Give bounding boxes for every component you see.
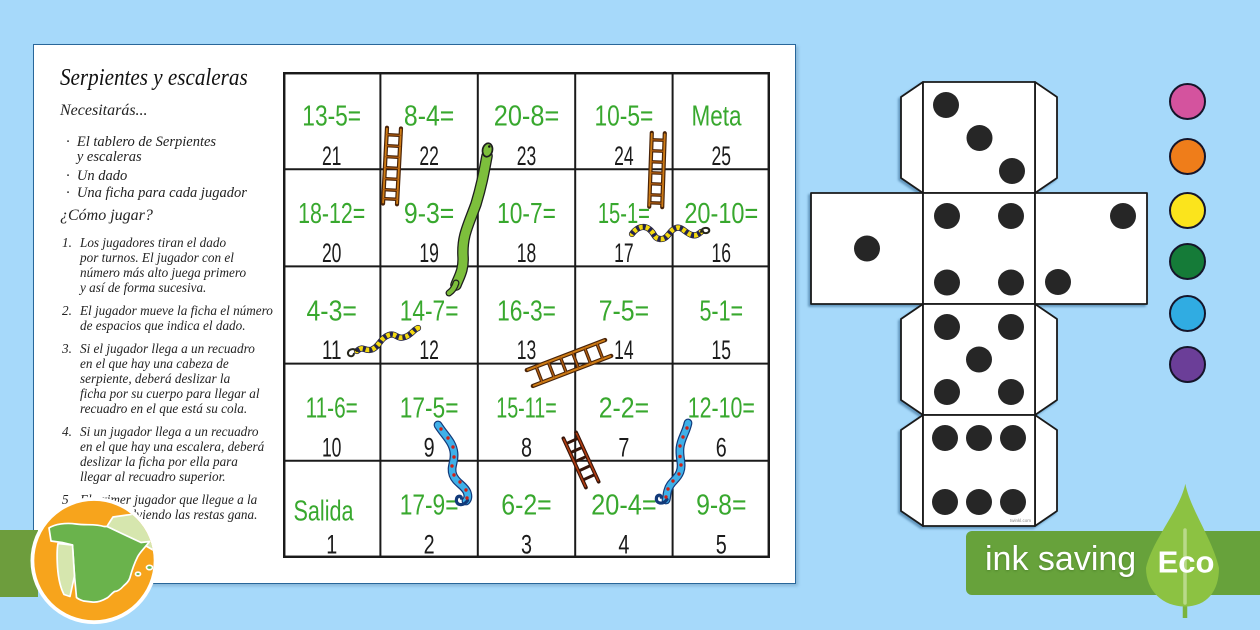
svg-text:8-4=: 8-4= — [404, 101, 454, 133]
svg-text:24: 24 — [614, 141, 634, 171]
svg-text:7: 7 — [618, 433, 629, 463]
svg-text:6-2=: 6-2= — [501, 490, 551, 522]
svg-text:9: 9 — [424, 433, 435, 463]
svg-text:2-2=: 2-2= — [599, 393, 649, 425]
svg-text:20: 20 — [322, 238, 342, 268]
svg-text:15-11=: 15-11= — [496, 393, 557, 425]
svg-text:20-10=: 20-10= — [684, 198, 758, 230]
svg-text:5-1=: 5-1= — [699, 296, 743, 328]
svg-text:1: 1 — [326, 530, 337, 559]
svg-text:9-8=: 9-8= — [696, 490, 746, 522]
svg-text:9-3=: 9-3= — [404, 198, 454, 230]
svg-text:16-3=: 16-3= — [497, 296, 556, 328]
svg-text:14: 14 — [614, 335, 634, 365]
svg-text:17-9=: 17-9= — [400, 490, 459, 522]
svg-text:17: 17 — [614, 238, 634, 268]
svg-text:10: 10 — [322, 433, 342, 463]
svg-text:12-10=: 12-10= — [688, 393, 755, 425]
svg-text:4: 4 — [618, 530, 629, 559]
svg-text:5: 5 — [716, 530, 727, 559]
svg-text:4-3=: 4-3= — [307, 296, 357, 328]
svg-text:20-4=: 20-4= — [591, 490, 657, 522]
svg-text:10-7=: 10-7= — [497, 198, 556, 230]
svg-text:23: 23 — [517, 141, 537, 171]
svg-text:21: 21 — [322, 141, 342, 171]
svg-text:Eco: Eco — [1158, 545, 1215, 580]
svg-text:25: 25 — [712, 141, 732, 171]
svg-text:6: 6 — [716, 433, 727, 463]
svg-text:11: 11 — [322, 335, 342, 365]
svg-text:Salida: Salida — [294, 496, 355, 528]
svg-text:Meta: Meta — [692, 101, 743, 133]
svg-text:16: 16 — [712, 238, 732, 268]
svg-text:18-12=: 18-12= — [298, 198, 365, 230]
svg-text:3: 3 — [521, 530, 532, 559]
svg-text:2: 2 — [424, 530, 435, 559]
svg-text:15: 15 — [712, 335, 732, 365]
svg-text:19: 19 — [419, 238, 439, 268]
svg-text:twinkl.com: twinkl.com — [1010, 518, 1031, 523]
svg-text:10-5=: 10-5= — [595, 101, 654, 133]
svg-text:14-7=: 14-7= — [400, 296, 459, 328]
svg-text:22: 22 — [419, 141, 439, 171]
svg-text:13: 13 — [517, 335, 537, 365]
svg-text:17-5=: 17-5= — [400, 393, 459, 425]
svg-text:18: 18 — [517, 238, 537, 268]
svg-text:20-8=: 20-8= — [494, 101, 560, 133]
svg-text:8: 8 — [521, 433, 532, 463]
svg-text:7-5=: 7-5= — [599, 296, 649, 328]
svg-text:13-5=: 13-5= — [302, 101, 361, 133]
svg-text:11-6=: 11-6= — [306, 393, 358, 425]
svg-text:12: 12 — [419, 335, 439, 365]
